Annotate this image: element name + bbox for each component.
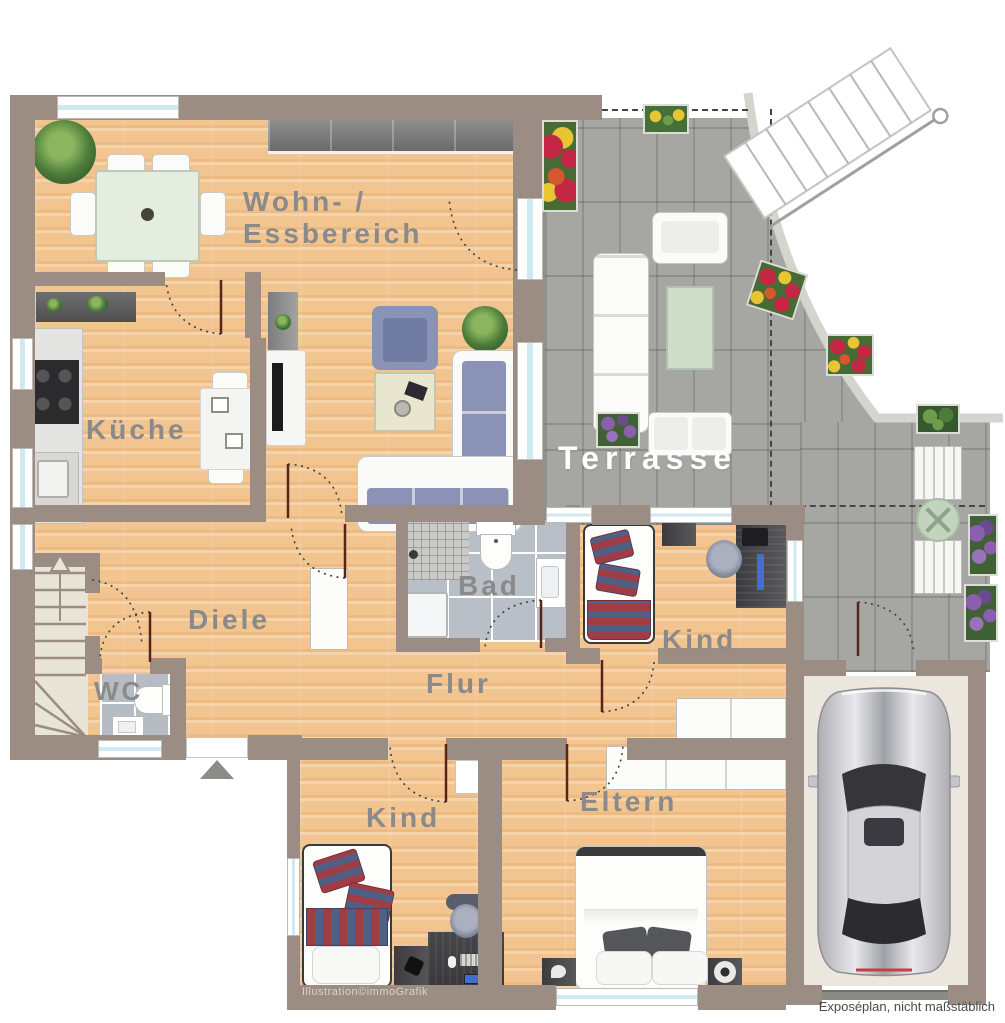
label-wc: WC bbox=[94, 676, 143, 707]
label-living-dining-line1: Wohn- / bbox=[243, 186, 366, 218]
label-terrace: Terrasse bbox=[558, 440, 737, 477]
label-living-dining-line2: Essbereich bbox=[243, 218, 422, 250]
label-bathroom: Bad bbox=[458, 570, 520, 602]
flower-box-icon bbox=[643, 104, 689, 134]
illustration-credit: Illustration©immoGrafik bbox=[302, 986, 428, 998]
label-child-right: Kind bbox=[662, 624, 736, 656]
floor-plan: Wohn- / Essbereich Küche Terrasse Diele … bbox=[0, 0, 1005, 1023]
flower-box-icon bbox=[542, 120, 578, 212]
planter-icon bbox=[916, 404, 960, 434]
label-kitchen: Küche bbox=[86, 414, 187, 446]
label-hallway: Diele bbox=[188, 604, 270, 636]
flower-box-icon bbox=[968, 514, 998, 576]
label-parents: Eltern bbox=[580, 786, 677, 818]
door-arcs-layer bbox=[0, 0, 1005, 1023]
label-child-bottom: Kind bbox=[366, 802, 440, 834]
label-corridor: Flur bbox=[426, 668, 491, 700]
flower-box-icon bbox=[964, 584, 998, 642]
flower-box-icon bbox=[826, 334, 874, 376]
disclaimer-text: Exposéplan, nicht maßstäblich bbox=[700, 999, 995, 1014]
